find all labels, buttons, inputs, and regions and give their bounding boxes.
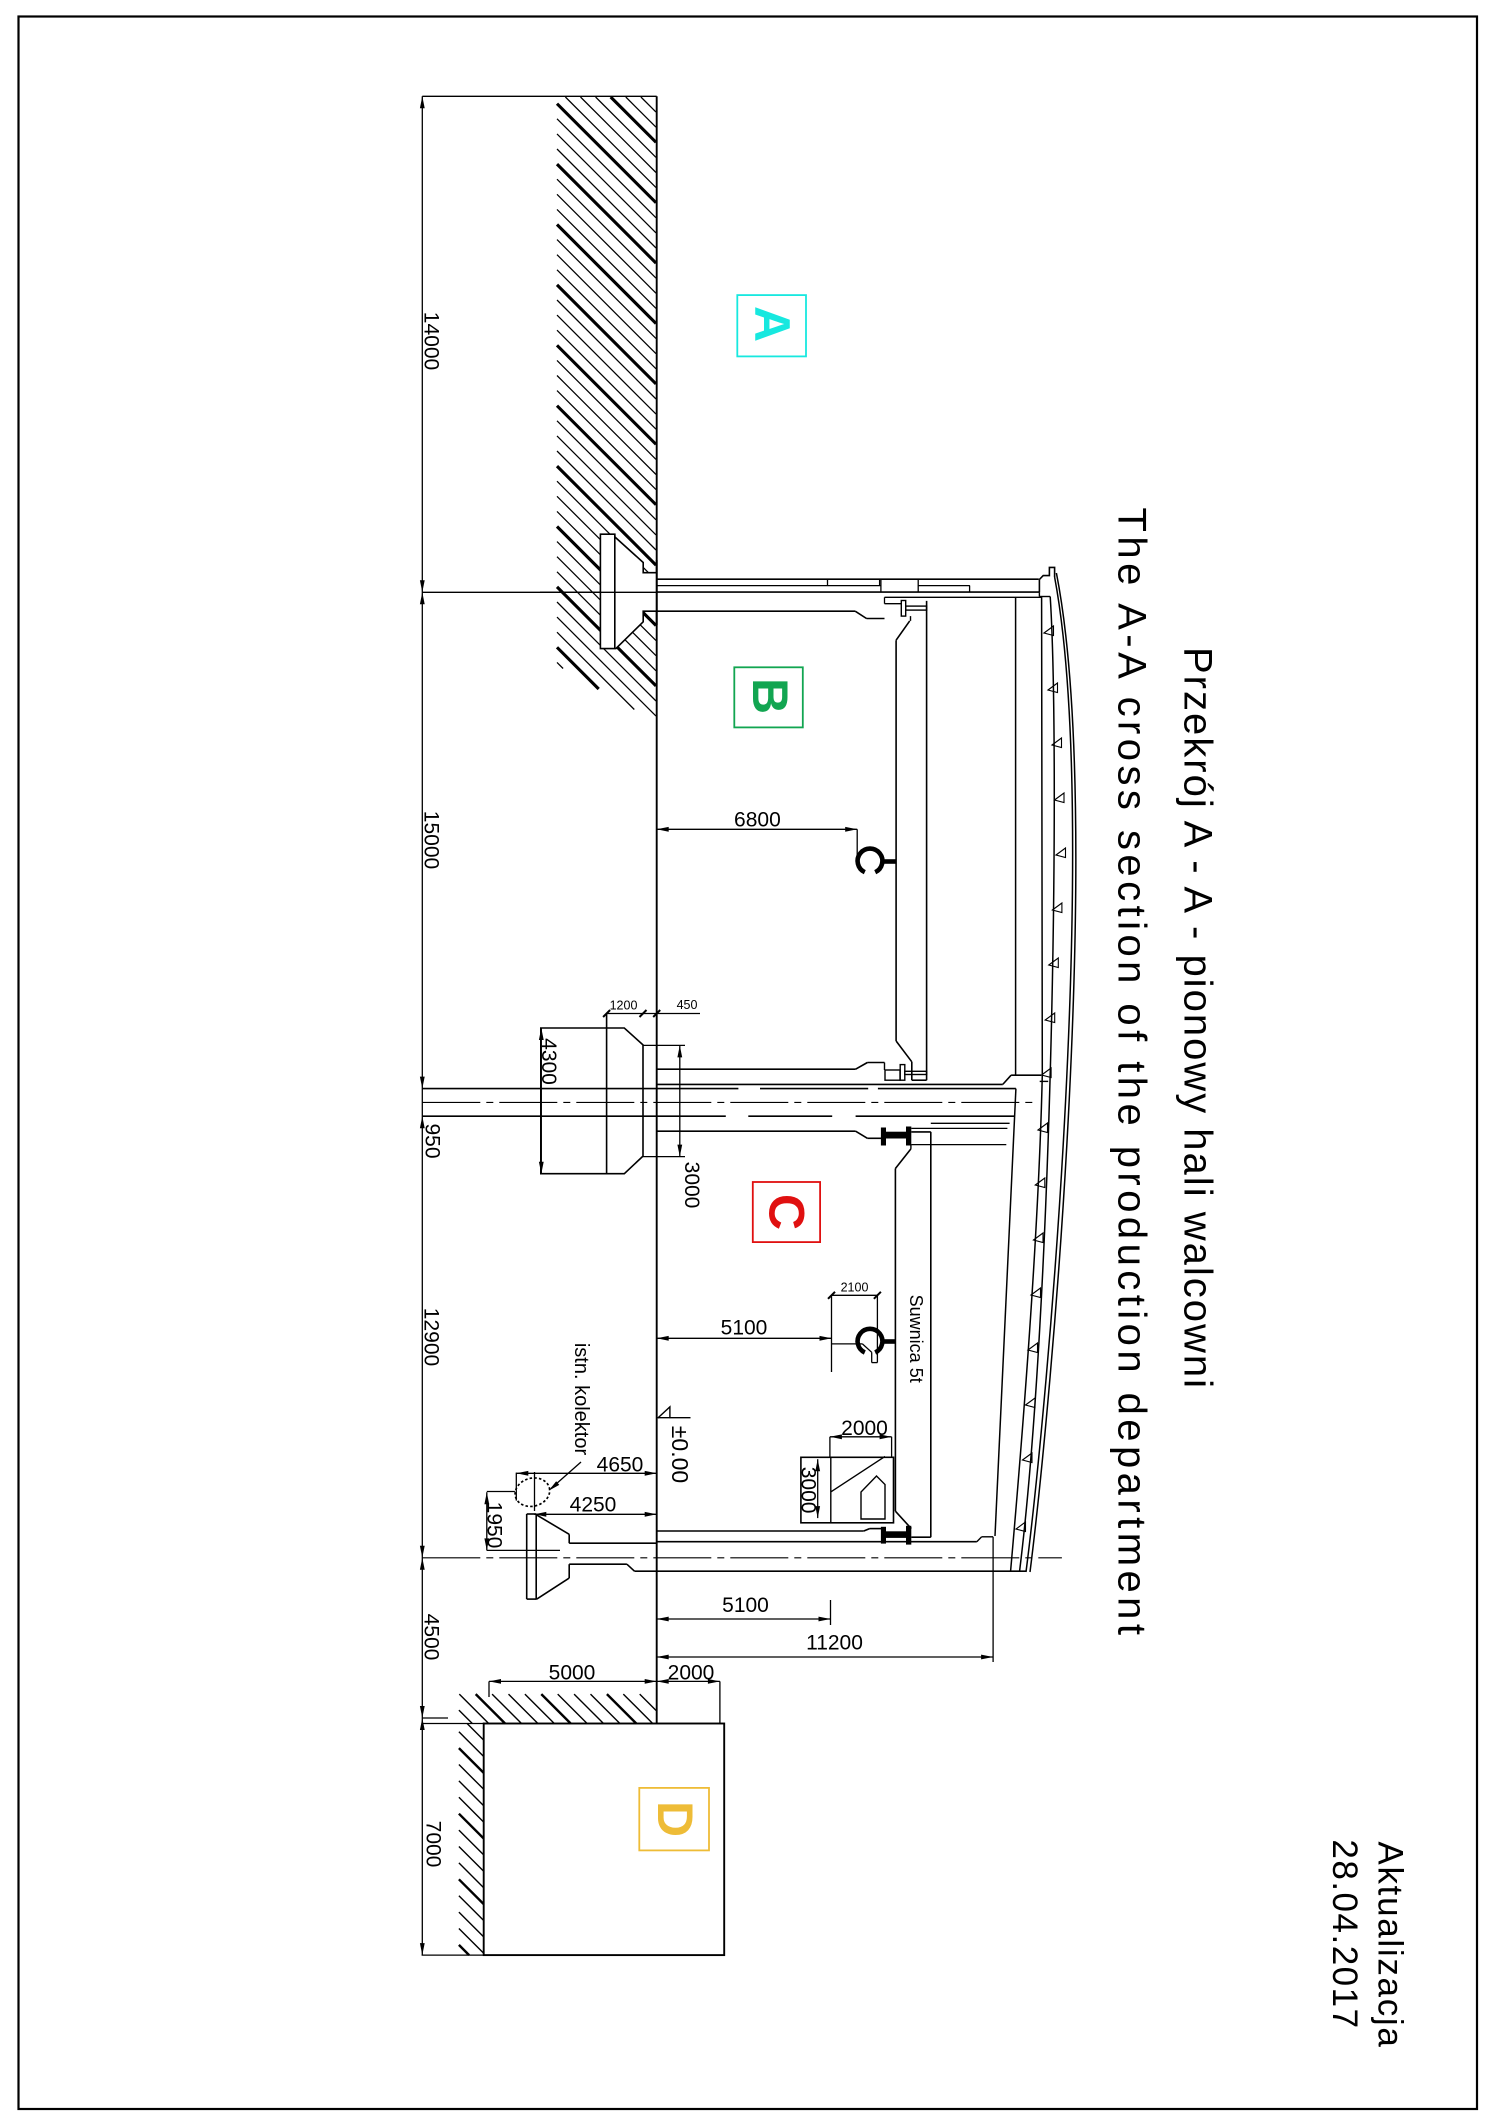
svg-text:4300: 4300	[537, 1038, 560, 1085]
svg-text:11200: 11200	[806, 1632, 863, 1655]
svg-text:1950: 1950	[483, 1502, 506, 1549]
svg-text:2000: 2000	[668, 1662, 715, 1685]
svg-text:28.04.2017: 28.04.2017	[1325, 1839, 1364, 2029]
svg-text:5100: 5100	[722, 1594, 769, 1617]
svg-text:15000: 15000	[420, 811, 443, 869]
svg-text:4500: 4500	[420, 1614, 443, 1661]
svg-text:12900: 12900	[420, 1308, 443, 1366]
svg-text:Suwnica 5t: Suwnica 5t	[906, 1295, 926, 1383]
svg-text:A: A	[744, 306, 800, 342]
svg-text:7000: 7000	[422, 1821, 445, 1868]
svg-text:5100: 5100	[721, 1317, 768, 1340]
svg-text:6800: 6800	[734, 809, 781, 832]
svg-text:The A-A cross section of the p: The A-A cross section of the production …	[1110, 508, 1154, 1640]
svg-text:2000: 2000	[841, 1417, 888, 1440]
svg-text:Aktualizacja: Aktualizacja	[1371, 1841, 1410, 2048]
svg-text:3000: 3000	[680, 1162, 703, 1209]
svg-text:4650: 4650	[597, 1454, 644, 1477]
svg-text:D: D	[647, 1801, 703, 1837]
svg-text:5000: 5000	[549, 1662, 596, 1685]
svg-text:istn. kolektor: istn. kolektor	[570, 1343, 592, 1456]
svg-text:±0.00: ±0.00	[667, 1426, 693, 1483]
svg-text:2100: 2100	[841, 1280, 869, 1294]
svg-text:14000: 14000	[420, 312, 443, 370]
svg-text:B: B	[742, 678, 798, 714]
svg-text:450: 450	[677, 998, 698, 1012]
svg-text:4250: 4250	[570, 1494, 617, 1517]
svg-text:950: 950	[421, 1123, 444, 1158]
svg-text:1200: 1200	[610, 999, 638, 1013]
svg-text:3000: 3000	[796, 1467, 819, 1514]
svg-text:C: C	[759, 1194, 815, 1230]
svg-text:Przekrój A - A - pionowy hali: Przekrój A - A - pionowy hali walcowni	[1176, 647, 1220, 1390]
